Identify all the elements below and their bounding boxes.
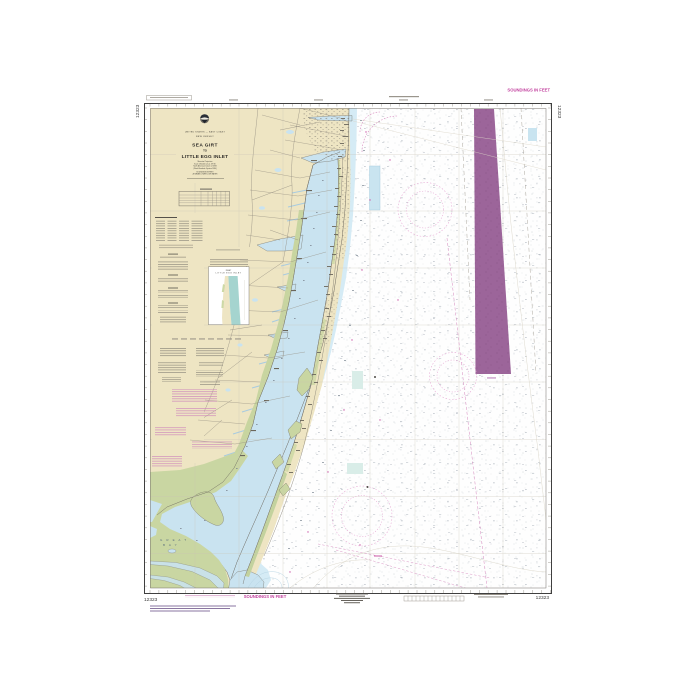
svg-text:LITTLE EGG INLET: LITTLE EGG INLET — [182, 154, 229, 160]
svg-text:12323: 12323 — [536, 595, 550, 601]
svg-text:B A Y: B A Y — [163, 543, 178, 547]
svg-text:SEA GIRT: SEA GIRT — [192, 143, 218, 149]
svg-text:NEW JERSEY: NEW JERSEY — [196, 136, 214, 138]
svg-text:12323: 12323 — [135, 104, 141, 118]
svg-text:G R E A T: G R E A T — [160, 538, 188, 542]
svg-text:UNITED STATES — EAST COAST: UNITED STATES — EAST COAST — [185, 130, 226, 133]
svg-text:AT MEAN LOWER LOW WATER: AT MEAN LOWER LOW WATER — [193, 173, 218, 176]
svg-text:SOUNDINGS IN FEET: SOUNDINGS IN FEET — [244, 594, 287, 599]
svg-text:(World Geodetic System 1984): (World Geodetic System 1984) — [193, 167, 216, 170]
svg-text:SOUNDINGS IN FEET: SOUNDINGS IN FEET — [507, 88, 550, 93]
svg-text:12323: 12323 — [144, 597, 158, 603]
svg-text:LITTLE EGG INLET: LITTLE EGG INLET — [216, 273, 242, 275]
svg-text:12323: 12323 — [556, 105, 562, 119]
